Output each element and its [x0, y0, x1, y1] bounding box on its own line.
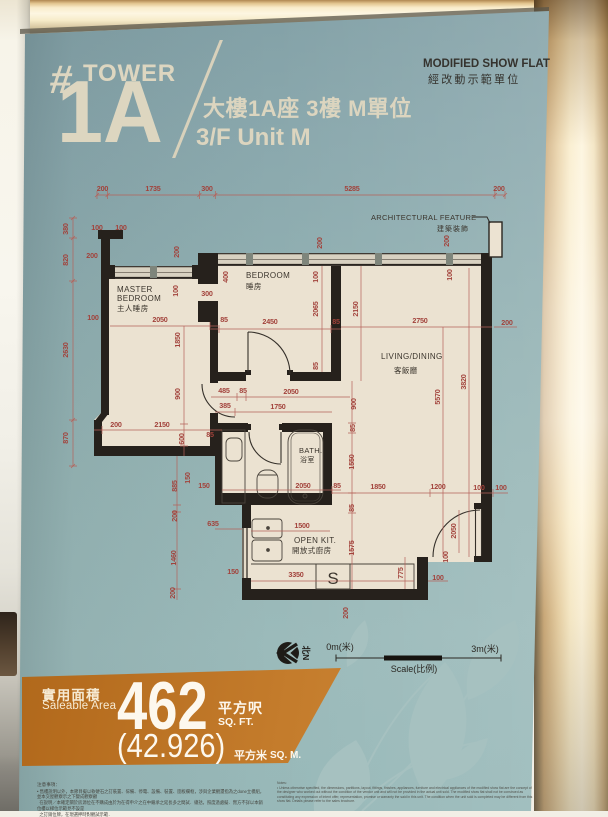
- svg-text:100: 100: [171, 285, 180, 297]
- svg-text:睡房: 睡房: [246, 281, 262, 291]
- svg-text:3m(米): 3m(米): [471, 643, 499, 654]
- svg-text:385: 385: [219, 401, 231, 410]
- svg-text:200: 200: [86, 251, 98, 260]
- svg-text:OPEN KIT.: OPEN KIT.: [294, 536, 336, 545]
- svg-text:1575: 1575: [347, 540, 356, 555]
- svg-text:85: 85: [332, 317, 340, 326]
- svg-text:2630: 2630: [61, 342, 70, 357]
- svg-text:150: 150: [227, 567, 239, 576]
- svg-text:400: 400: [221, 271, 230, 283]
- svg-text:900: 900: [173, 388, 182, 400]
- svg-text:200: 200: [501, 318, 513, 327]
- svg-text:900: 900: [349, 398, 358, 410]
- svg-text:MASTER: MASTER: [117, 285, 153, 294]
- svg-text:2065: 2065: [311, 301, 320, 316]
- svg-text:100: 100: [87, 313, 99, 322]
- svg-text:ARCHITECTURAL FEATURE: ARCHITECTURAL FEATURE: [371, 213, 476, 222]
- svg-text:3350: 3350: [288, 570, 303, 579]
- svg-text:200: 200: [442, 235, 451, 247]
- svg-text:600: 600: [177, 433, 186, 445]
- svg-text:200: 200: [493, 184, 505, 193]
- svg-text:775: 775: [396, 567, 405, 579]
- svg-text:0m(米): 0m(米): [326, 641, 354, 652]
- svg-text:1850: 1850: [370, 482, 385, 491]
- svg-text:100: 100: [91, 223, 103, 232]
- svg-text:2150: 2150: [351, 301, 360, 316]
- svg-text:200: 200: [172, 246, 181, 258]
- svg-text:S: S: [327, 569, 338, 588]
- svg-text:1850: 1850: [173, 332, 182, 347]
- svg-text:200: 200: [315, 237, 324, 249]
- svg-text:635: 635: [207, 519, 219, 528]
- svg-text:BEDROOM: BEDROOM: [117, 294, 161, 303]
- svg-text:2050: 2050: [295, 481, 310, 490]
- svg-text:85: 85: [311, 362, 320, 370]
- svg-text:2050: 2050: [152, 315, 167, 324]
- svg-text:浴室: 浴室: [300, 455, 315, 464]
- svg-text:200: 200: [110, 420, 122, 429]
- svg-text:100: 100: [115, 223, 127, 232]
- svg-text:100: 100: [495, 483, 507, 492]
- svg-text:2050: 2050: [283, 387, 298, 396]
- svg-text:客飯廳: 客飯廳: [394, 365, 418, 375]
- svg-text:485: 485: [218, 386, 230, 395]
- svg-text:380: 380: [61, 223, 70, 235]
- svg-text:200: 200: [168, 587, 177, 599]
- svg-text:100: 100: [445, 269, 454, 281]
- svg-text:1550: 1550: [347, 454, 356, 469]
- svg-text:85: 85: [206, 430, 214, 439]
- svg-text:85: 85: [333, 481, 341, 490]
- svg-text:2050: 2050: [449, 523, 458, 538]
- svg-text:2450: 2450: [262, 317, 277, 326]
- svg-text:870: 870: [61, 432, 70, 444]
- svg-text:1460: 1460: [169, 550, 178, 565]
- svg-text:200: 200: [341, 607, 350, 619]
- svg-text:BATH.: BATH.: [299, 446, 323, 455]
- svg-text:150: 150: [183, 472, 192, 484]
- svg-text:建築裝飾: 建築裝飾: [437, 224, 469, 233]
- svg-text:100: 100: [441, 551, 450, 563]
- svg-text:2150: 2150: [154, 420, 169, 429]
- svg-text:200: 200: [97, 184, 109, 193]
- svg-text:200: 200: [170, 510, 179, 522]
- svg-text:150: 150: [198, 481, 210, 490]
- svg-text:5285: 5285: [344, 184, 359, 193]
- svg-text:BEDROOM: BEDROOM: [246, 271, 290, 280]
- svg-text:主人睡房: 主人睡房: [117, 303, 149, 313]
- svg-text:1750: 1750: [270, 402, 285, 411]
- svg-text:北N: 北N: [301, 646, 311, 661]
- svg-text:820: 820: [61, 254, 70, 266]
- svg-text:100: 100: [432, 573, 444, 582]
- svg-text:85: 85: [220, 315, 228, 324]
- svg-text:300: 300: [201, 289, 213, 298]
- svg-text:1500: 1500: [294, 521, 309, 530]
- svg-text:LIVING/DINING: LIVING/DINING: [381, 352, 443, 361]
- svg-text:885: 885: [170, 480, 179, 492]
- svg-text:1200: 1200: [430, 482, 445, 491]
- svg-text:Scale(比例): Scale(比例): [391, 663, 438, 674]
- svg-text:5570: 5570: [433, 389, 442, 404]
- svg-text:85: 85: [239, 386, 247, 395]
- svg-text:2750: 2750: [412, 316, 427, 325]
- svg-text:85: 85: [348, 424, 357, 432]
- svg-text:100: 100: [473, 483, 485, 492]
- svg-text:3820: 3820: [459, 374, 468, 389]
- svg-text:開放式廚房: 開放式廚房: [292, 545, 332, 555]
- svg-text:85: 85: [347, 504, 356, 512]
- svg-text:100: 100: [311, 271, 320, 283]
- svg-text:1735: 1735: [145, 184, 160, 193]
- svg-text:300: 300: [201, 184, 213, 193]
